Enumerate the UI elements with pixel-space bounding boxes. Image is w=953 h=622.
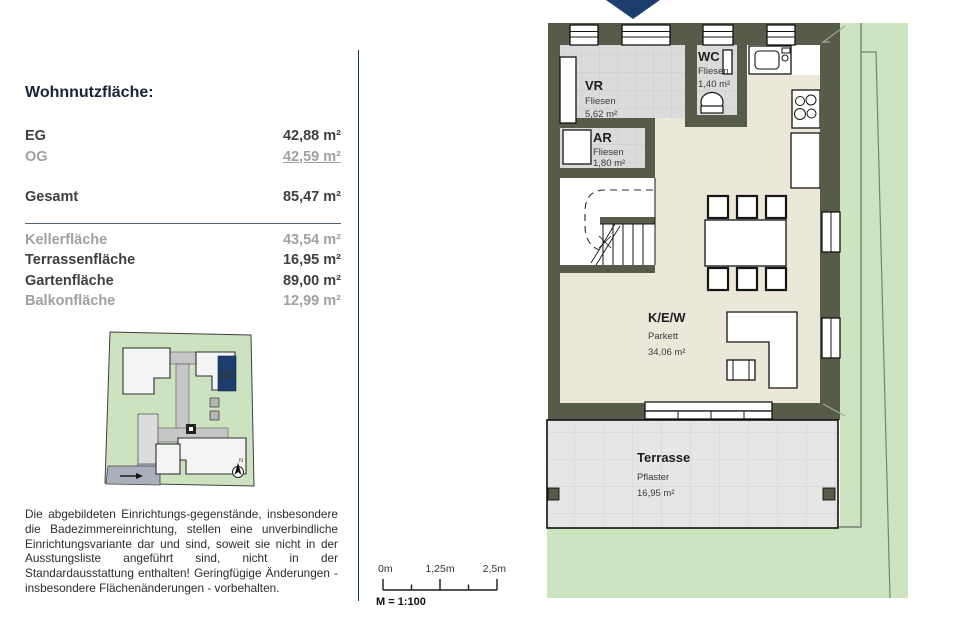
room-floor: Fliesen [698, 66, 729, 77]
page-title: Wohnnutzfläche: [25, 84, 341, 102]
toilet-icon [701, 93, 723, 114]
terrace [547, 420, 838, 528]
window [570, 25, 598, 45]
area-label: Kellerfläche [25, 230, 107, 251]
area-value: 42,88 m² [283, 126, 341, 147]
scale-tick-labels: 0m 1,25m 2,5m [376, 563, 506, 576]
vr-floor [560, 45, 685, 118]
area-row-terrasse: Terrassenfläche 16,95 m² [25, 250, 341, 271]
scale-bar: 0m 1,25m 2,5m M = 1:100 [376, 563, 506, 608]
entrance-door [560, 57, 576, 123]
room-floor: Parkett [648, 331, 678, 342]
area-value: 12,99 m² [283, 291, 341, 312]
room-floor: Fliesen [593, 147, 624, 158]
room-name: K/E/W [648, 310, 686, 325]
spacer [25, 167, 341, 187]
disclaimer-text: Die abgebildeten Einrichtungs-gegenständ… [25, 507, 338, 596]
window [822, 318, 840, 358]
terrace-post [548, 488, 559, 500]
room-name: VR [585, 78, 604, 93]
area-value: 43,54 m² [283, 230, 341, 251]
room-area: 1,80 m² [593, 158, 625, 169]
dining-set [705, 196, 786, 290]
stove-icon [792, 90, 820, 128]
area-label: EG [25, 126, 46, 147]
room-floor: Fliesen [585, 96, 616, 107]
living-area-table: Wohnnutzfläche: EG 42,88 m² OG 42,59 m² … [25, 84, 341, 312]
area-row-eg: EG 42,88 m² [25, 126, 341, 147]
floorplan-brochure-page: Wohnnutzfläche: EG 42,88 m² OG 42,59 m² … [0, 0, 953, 622]
kitchen-counter [791, 133, 820, 188]
area-value: 42,59 m² [283, 147, 341, 168]
area-value: 16,95 m² [283, 250, 341, 271]
siteplan-thumbnail: B2 N [98, 328, 266, 498]
area-row-balkon: Balkonfläche 12,99 m² [25, 291, 341, 312]
area-row-keller: Kellerfläche 43,54 m² [25, 230, 341, 251]
unit-b2-label: B2 [220, 369, 234, 381]
room-floor: Pflaster [637, 472, 669, 483]
room-area: 1,40 m² [698, 79, 730, 90]
chair [737, 196, 757, 218]
area-row-gesamt: Gesamt 85,47 m² [25, 187, 341, 208]
window [767, 25, 795, 45]
area-label: Balkonfläche [25, 291, 115, 312]
room-area: 34,06 m² [648, 347, 686, 358]
down-arrow-marker [606, 0, 660, 19]
north-label: N [239, 458, 243, 464]
scale-tick-label: 1,25m [425, 563, 454, 575]
floorplan-drawing: VR Fliesen 5,62 m² WC Fliesen 1,40 m² AR… [545, 0, 953, 622]
dining-table [705, 220, 786, 266]
room-area: 5,62 m² [585, 109, 617, 120]
chair [766, 268, 786, 290]
chair [766, 196, 786, 218]
area-row-garten: Gartenfläche 89,00 m² [25, 271, 341, 292]
chair [708, 268, 728, 290]
scale-tick-label: 0m [378, 563, 393, 575]
ar-cabinet [563, 130, 591, 164]
room-name: WC [698, 49, 720, 64]
area-value: 89,00 m² [283, 271, 341, 292]
area-label: Terrassenfläche [25, 250, 135, 271]
chair [737, 268, 757, 290]
window [622, 25, 670, 45]
room-name: AR [593, 130, 612, 145]
window [703, 25, 733, 45]
room-area: 16,95 m² [637, 488, 675, 499]
area-value: 85,47 m² [283, 187, 341, 208]
coffee-table [727, 360, 755, 380]
unit-b2-marker: B2 [218, 356, 236, 391]
window [822, 212, 840, 252]
area-label: Gesamt [25, 187, 78, 208]
terrace-post [823, 488, 835, 500]
scale-bar-ruler [376, 576, 506, 592]
room-name: Terrasse [637, 450, 690, 465]
scale-ratio-label: M = 1:100 [376, 596, 506, 608]
chair [708, 196, 728, 218]
table-divider [25, 223, 341, 224]
terrace-sliding-door [645, 402, 772, 420]
scale-tick-label: 2,5m [483, 563, 506, 575]
area-row-og: OG 42,59 m² [25, 147, 341, 168]
area-label: OG [25, 147, 48, 168]
area-label: Gartenfläche [25, 271, 114, 292]
section-divider [358, 50, 359, 601]
